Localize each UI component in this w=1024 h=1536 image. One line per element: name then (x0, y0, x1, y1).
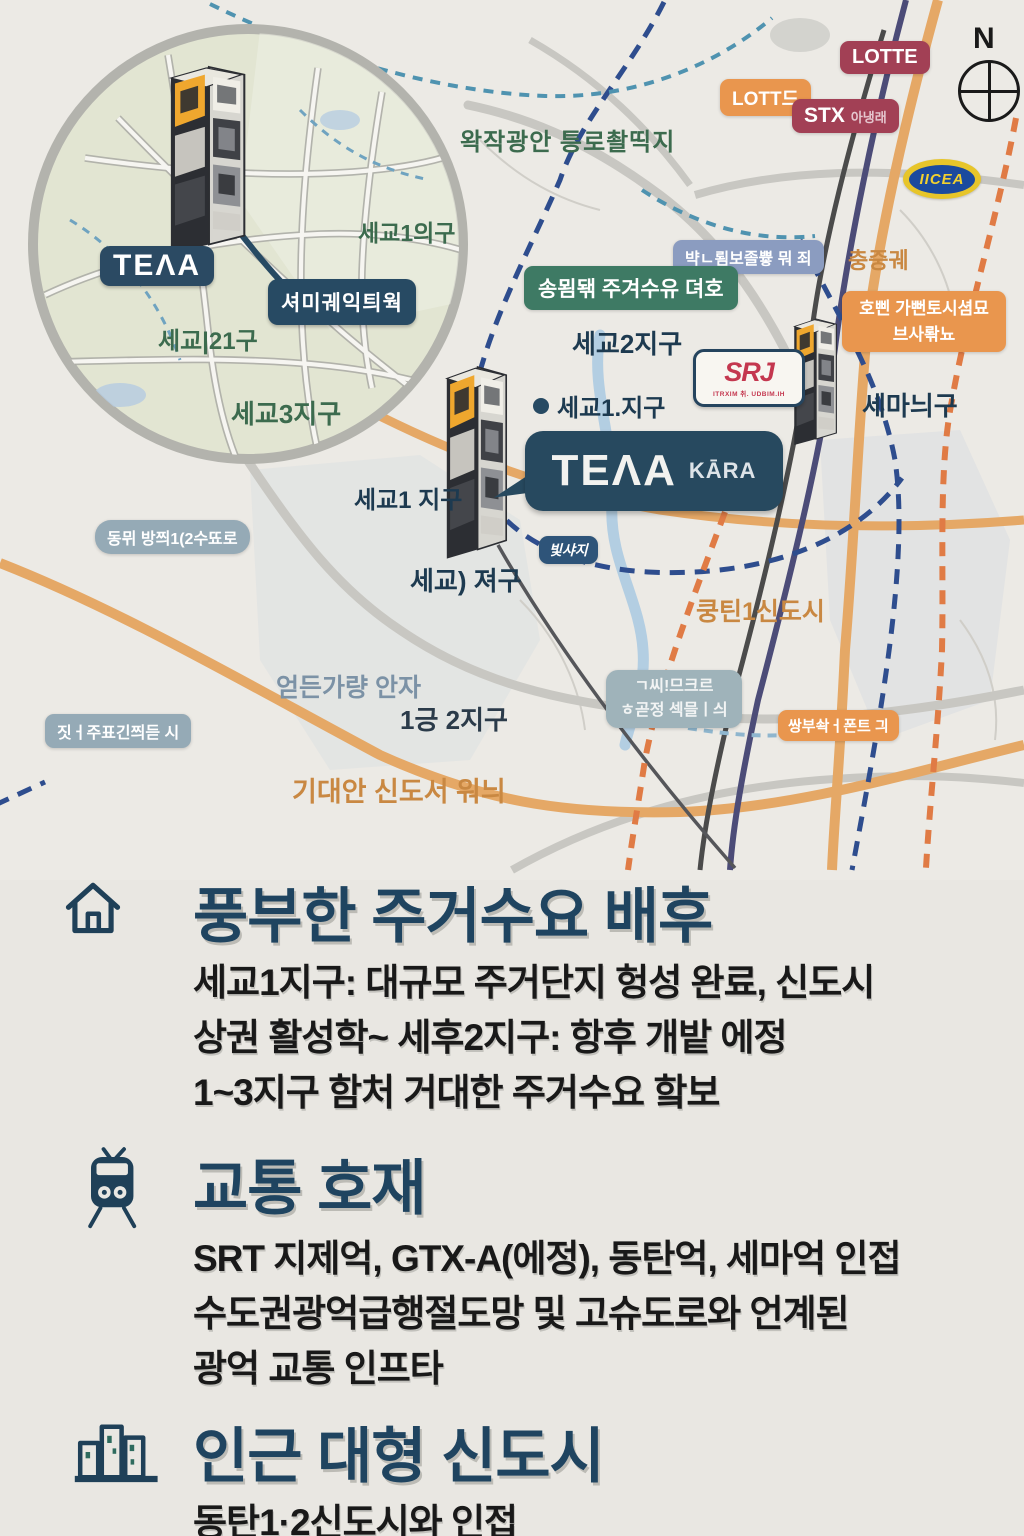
slate-badge-mid-line1: ㄱ씨!므크르 (618, 675, 730, 699)
section-transit-title: 교통 호재 (193, 1140, 425, 1227)
compass-n-label: N (973, 22, 995, 56)
map-label-green-top: 왁작광안 틍로촬띡지 (460, 122, 675, 157)
train-icon (80, 1144, 146, 1236)
district-dot-icon (533, 398, 549, 414)
map-label-kungtin: 쿵틴1신도시 (696, 592, 825, 628)
stx-badge-main: STX (804, 104, 845, 127)
house-icon (62, 866, 124, 946)
map-label-faded-area: 얻든가량 안자 (276, 668, 421, 704)
map-label-il2: 1긍 2지구 (400, 700, 508, 737)
section-transit-line2: 수도권광억급행절도망 및 고슈도로와 언계된 (193, 1283, 849, 1337)
ikea-logo: IICEA (903, 159, 981, 199)
section-transit-line3: 광억 교통 인프타 (193, 1338, 443, 1392)
tera-badge-inset: TEΛA (100, 246, 214, 286)
map-label-sejo1-dot: 세교1.지구 (533, 388, 665, 423)
section-transit-line1: SRT 지제억, GTX-A(에정), 동탄억, 세마억 인접 (193, 1228, 901, 1282)
infographic-page: LOTTE LOTT드 STX아냉래 IICEA N 왁작광안 틍로촬띡지 뱍ㄴ… (0, 0, 1024, 1536)
location-callout-inset: 셔미궤익틔웍 (268, 279, 416, 325)
slate-badge-left2: 짓ㅓ주표긴쯰듣 시 (45, 714, 191, 748)
tera-kara-bubble: TEΛA KĀRA (525, 431, 783, 511)
green-demand-badge: 송묌돾 주겨수유 뎌호 (524, 266, 738, 310)
section-city-title: 인근 대형 신도시 (193, 1408, 604, 1495)
map-label-orange-new-town: 기대안 신도서 워늬 (292, 770, 506, 809)
stx-badge: STX아냉래 (792, 99, 899, 133)
map-label-chung: 충중궤 (848, 243, 909, 275)
handwritten-badge: 빛샤지 (539, 536, 598, 564)
map-label-semani: 세마늬구 (862, 386, 958, 423)
srt-logo-subtext: ITRXIM 취. UDBIM.IH (713, 388, 785, 398)
pylon-marker-inset (171, 67, 244, 253)
section-housing-line1: 세교1지구: 대규모 주거단지 헝성 완료, 신도시 (193, 952, 874, 1006)
orange-badge-mid: 쌍부솩ㅓ폰트 긔 (778, 710, 899, 741)
map-label-sejo-paren: 세교) 져구 (410, 561, 522, 598)
slate-badge-left1: 동뮈 방쯰1(2수뚀로 (95, 520, 250, 554)
pylon-marker-center (447, 367, 506, 559)
section-housing-line3: 1~3지구 함처 거대한 주거수요 핰보 (193, 1062, 719, 1116)
slate-badge-mid: ㄱ씨!므크르 ㅎ곧정 섹믈ㅣ싀 (606, 670, 742, 728)
slate-badge-mid-line2: ㅎ곧정 섹믈ㅣ싀 (618, 699, 730, 723)
section-city-line1: 동탄1·2신도시와 인접 (193, 1492, 517, 1536)
section-housing-line2: 상권 활성학~ 세후2지구: 항후 개밭 에정 (193, 1007, 787, 1061)
compass-icon (958, 60, 1020, 122)
orange-right-badge-line2: 브사롺뇨 (854, 322, 994, 348)
buildings-icon (72, 1416, 164, 1488)
map-label-sejo1: 세교1 지구 (354, 480, 462, 515)
ikea-logo-text: IICEA (909, 165, 975, 194)
kara-logo-text: KĀRA (689, 458, 757, 484)
inset-district-2: 세교|21구 (158, 321, 258, 356)
srt-badge: SRJ ITRXIM 취. UDBIM.IH (693, 349, 805, 407)
section-housing-title: 풍부한 주거수요 배후 (193, 868, 712, 955)
map-label-sejo2: 세교2지구 (572, 324, 682, 361)
orange-right-badge: 호삔 가뻔토시셤묘 브사롺뇨 (842, 291, 1006, 352)
inset-district-1: 세교1의구 (358, 214, 455, 248)
srt-logo: SRJ (724, 359, 774, 386)
stx-badge-sub: 아냉래 (851, 110, 887, 125)
inset-district-3: 세교3지구 (231, 394, 341, 431)
lotte-badge: LOTTE (840, 41, 930, 74)
tera-logo-text: TEΛA (552, 449, 677, 493)
orange-right-badge-line1: 호삔 가뻔토시셤묘 (854, 296, 994, 322)
